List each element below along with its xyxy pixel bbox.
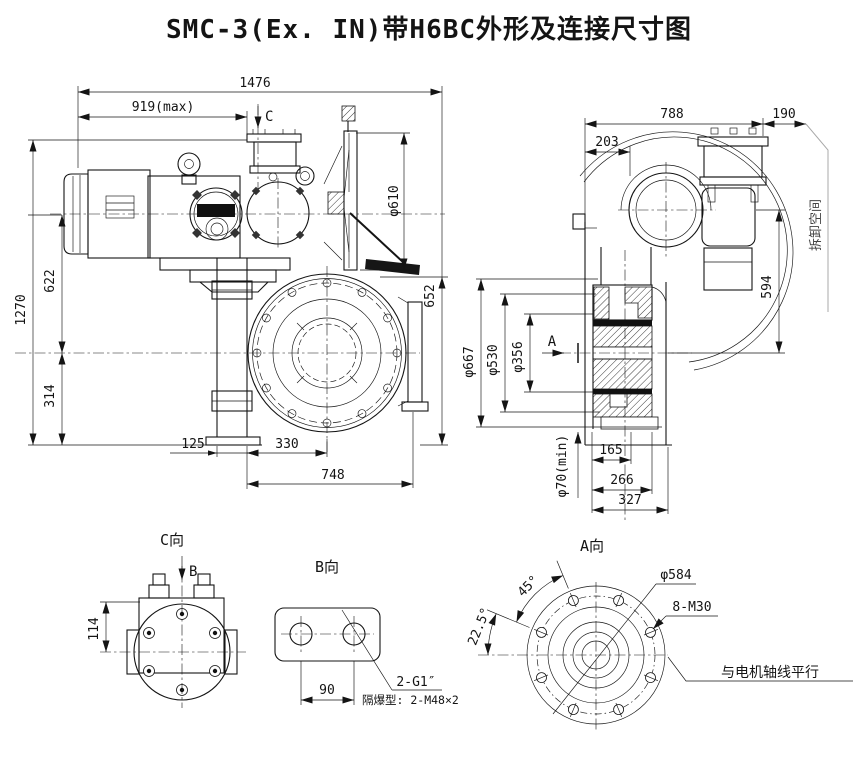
- callout-phi584: φ584: [553, 568, 696, 714]
- view-a: A向 45° 22.5° φ584 8-M30: [465, 537, 853, 730]
- control-panel: [190, 188, 242, 240]
- dim-label-266: 266: [610, 473, 633, 488]
- callout-8-m30: 8-M30: [653, 600, 718, 629]
- dim-label-phi70min: φ70(min): [555, 435, 570, 498]
- dim-594: 594: [668, 210, 785, 353]
- support-bracket: [398, 297, 428, 411]
- dim-label-748: 748: [321, 468, 344, 483]
- terminal-box: [247, 129, 314, 185]
- dim-203: 203: [585, 135, 630, 176]
- dim-label-1270: 1270: [14, 294, 29, 325]
- view-b-body: [275, 608, 380, 661]
- dim-label-phi530: φ530: [486, 344, 501, 375]
- dim-622: 622: [43, 215, 62, 353]
- parallel-note-label: 与电机轴线平行: [721, 665, 819, 681]
- conduit-label: 2-G1″: [396, 675, 435, 690]
- dim-phi610: φ610: [356, 133, 410, 270]
- dim-919max: 919(max): [78, 100, 247, 140]
- declutch-lever: [350, 213, 420, 275]
- dim-314: 314: [43, 353, 62, 445]
- dim-788: 788: [585, 107, 763, 222]
- section-arrow-b: B: [182, 556, 197, 580]
- dim-748: 748: [247, 412, 413, 488]
- view-b: B向 90 2-G1″ 隔爆型: 2-M48×2: [275, 558, 459, 707]
- brand-plate: [197, 204, 235, 217]
- drawing-canvas: SMC-3(Ex. IN)带H6BC外形及连接尺寸图: [0, 0, 858, 759]
- dim-label-90: 90: [319, 683, 335, 698]
- dim-label-phi667: φ667: [462, 346, 477, 377]
- motor-end: [618, 162, 716, 258]
- dim-phi70min: φ70(min): [555, 432, 578, 498]
- view-c: C向 B 114: [87, 531, 246, 708]
- handwheel-hub: [328, 192, 344, 214]
- removal-space-label: 拆卸空间: [808, 199, 824, 251]
- dim-label-788: 788: [660, 107, 683, 122]
- dim-90: 90: [301, 661, 354, 705]
- drawing-page: SMC-3(Ex. IN)带H6BC外形及连接尺寸图: [0, 0, 858, 759]
- knob-icon: [296, 167, 314, 185]
- motor-nameplate: [106, 196, 134, 218]
- dim-angle-22-5: 22.5°: [465, 606, 496, 655]
- dim-label-165: 165: [599, 443, 622, 458]
- section-arrow-c: C: [258, 106, 273, 128]
- drawing-title: SMC-3(Ex. IN)带H6BC外形及连接尺寸图: [166, 15, 692, 45]
- dim-label-phi610: φ610: [387, 185, 402, 216]
- note-parallel-motor-axis: 与电机轴线平行: [668, 657, 853, 681]
- section-arrow-a: A: [542, 334, 578, 363]
- dim-label-622: 622: [43, 269, 58, 292]
- cable-gland-left: [149, 585, 169, 598]
- label-8-m30: 8-M30: [672, 600, 711, 615]
- dim-label-phi356: φ356: [511, 341, 526, 372]
- lifting-eye-icon: [178, 153, 200, 175]
- terminal-box-side: [698, 128, 768, 202]
- dim-114: 114: [87, 602, 140, 652]
- dim-266: 266: [592, 432, 652, 494]
- dim-label-125: 125: [181, 437, 204, 452]
- handwheel: [324, 106, 357, 270]
- front-view: 1476 919(max) C φ610 652 1270 622 314: [14, 76, 448, 489]
- junction-box: [702, 188, 755, 290]
- dim-label-203: 203: [595, 135, 618, 150]
- view-a-label: A向: [580, 537, 604, 555]
- explosion-proof-note: 隔爆型: 2-M48×2: [362, 693, 459, 707]
- dim-190: 190: [763, 107, 806, 124]
- dim-label-652: 652: [423, 284, 438, 307]
- section-label-b: B: [189, 564, 197, 580]
- dim-label-22-5deg: 22.5°: [465, 606, 494, 648]
- section-label-c: C: [265, 109, 273, 125]
- selector-knob-icon: [206, 218, 228, 240]
- gearbox-housing: [148, 153, 290, 292]
- dim-label-327: 327: [618, 493, 641, 508]
- dim-label-330: 330: [275, 437, 298, 452]
- dim-label-1476: 1476: [239, 76, 270, 91]
- dim-angle-45: 45°: [487, 561, 568, 628]
- cable-gland-right: [194, 585, 214, 598]
- dim-label-919max: 919(max): [132, 100, 195, 115]
- removal-space-note: 拆卸空间: [806, 124, 828, 312]
- lever-grip: [365, 259, 420, 275]
- dim-label-phi584: φ584: [660, 568, 691, 583]
- dim-label-594: 594: [760, 275, 775, 299]
- view-b-label: B向: [315, 558, 339, 576]
- dim-label-45deg: 45°: [515, 573, 542, 600]
- section-label-a: A: [548, 334, 557, 350]
- side-view: 788 190 203 594 φ667 φ530 φ356 A: [462, 107, 828, 520]
- view-c-label: C向: [160, 531, 184, 549]
- dim-label-314: 314: [43, 384, 58, 408]
- dim-label-190: 190: [772, 107, 795, 122]
- dim-label-114: 114: [87, 617, 102, 641]
- dim-330: 330: [247, 437, 327, 457]
